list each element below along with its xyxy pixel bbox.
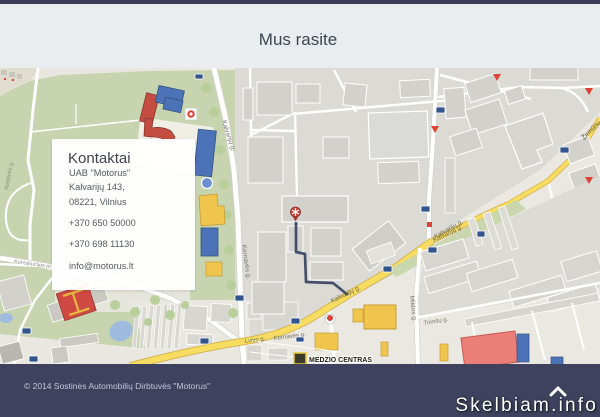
svg-text:MEDZIO CENTRAS: MEDZIO CENTRAS — [309, 357, 372, 364]
